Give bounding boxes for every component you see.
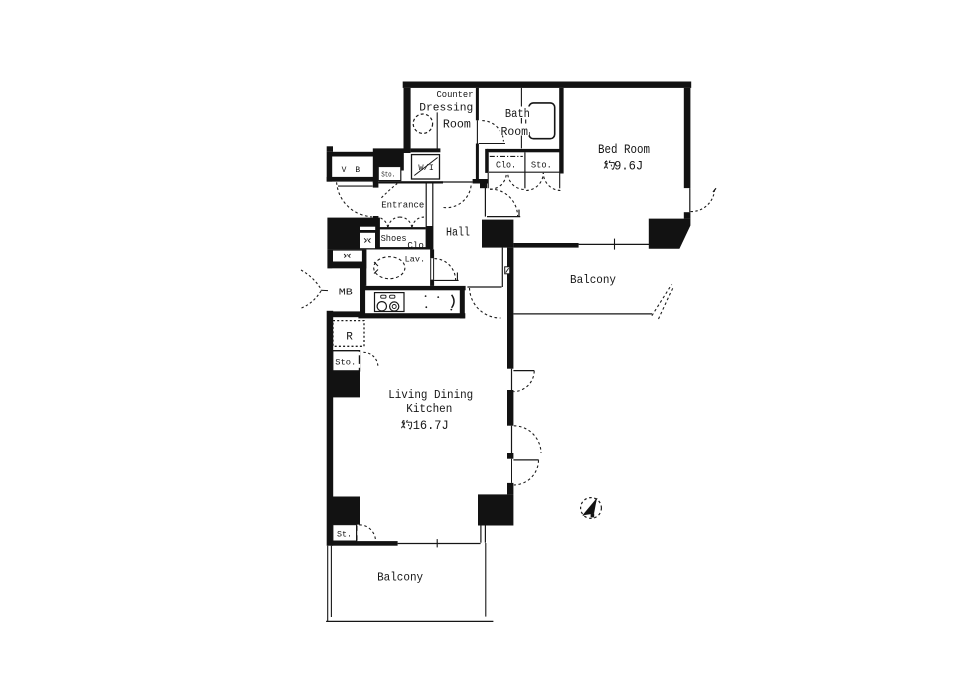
svg-text:Dressing: Dressing [419, 103, 473, 115]
svg-text:Sto.: Sto. [531, 161, 552, 171]
svg-text:Lav.: Lav. [405, 255, 426, 265]
svg-text:R: R [346, 332, 353, 344]
svg-text:Bath: Bath [505, 108, 530, 121]
svg-text:16.7J: 16.7J [413, 419, 449, 433]
svg-text:Shoes: Shoes [381, 234, 407, 244]
svg-text:W/I: W/I [418, 164, 434, 173]
svg-text:Entrance: Entrance [381, 199, 424, 210]
svg-text:Bed Room: Bed Room [598, 143, 650, 157]
svg-text:Kitchen: Kitchen [406, 402, 452, 416]
svg-text:MB: MB [339, 287, 353, 298]
svg-text:Room: Room [443, 119, 471, 132]
svg-text:Balcony: Balcony [377, 571, 423, 585]
svg-text:Balcony: Balcony [570, 273, 616, 287]
svg-text:Clo.: Clo. [496, 161, 516, 171]
svg-text:9.6J: 9.6J [614, 159, 643, 173]
svg-text:Sto.: Sto. [381, 171, 395, 179]
svg-text:Living Dining: Living Dining [388, 388, 473, 402]
svg-text:Hall: Hall [446, 226, 470, 239]
svg-text:Clo.: Clo. [407, 241, 429, 251]
svg-text:St.: St. [337, 531, 352, 540]
svg-text:Room: Room [501, 126, 529, 139]
svg-text:Sto.: Sto. [335, 358, 356, 367]
svg-text:Counter: Counter [437, 90, 474, 100]
